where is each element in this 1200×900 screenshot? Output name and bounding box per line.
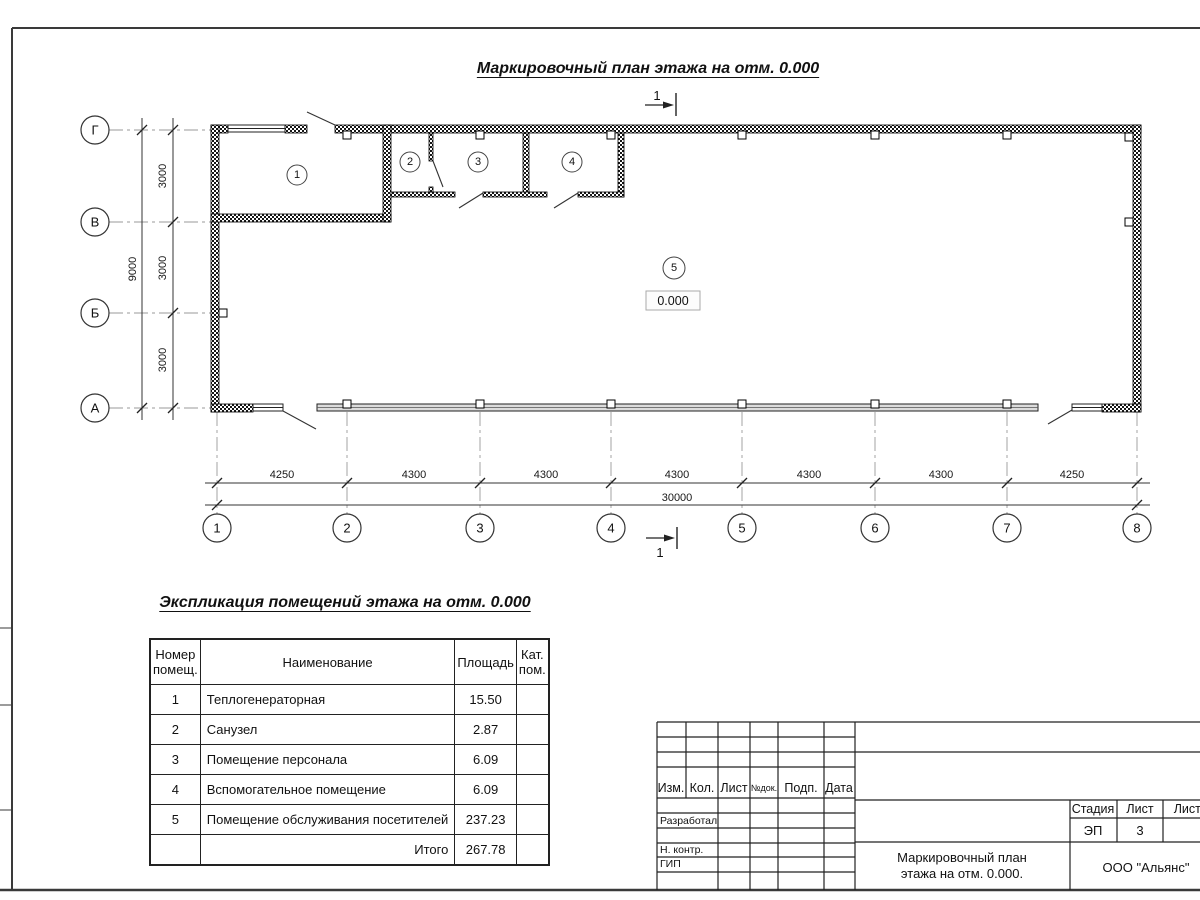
sheet-label: Лист (1126, 802, 1153, 816)
titleblock-row-gip: ГИП (660, 858, 681, 870)
room-area-cell: 237.23 (455, 805, 517, 835)
dim-label: 4250 (270, 469, 294, 481)
room-number: 4 (569, 156, 575, 168)
titleblock-row-developed: Разработал (660, 815, 717, 827)
titleblock-col-data: Дата (825, 781, 853, 795)
wall (1133, 125, 1141, 412)
room-name-cell: Теплогенераторная (200, 685, 455, 715)
doc-title-line2: этажа на отм. 0.000. (901, 866, 1023, 881)
explication-title: Экспликация помещений этажа на отм. 0.00… (150, 594, 540, 612)
door-leaf (1048, 410, 1072, 424)
room-cat-cell (516, 745, 548, 775)
dim-label: 3000 (157, 164, 169, 188)
explication-table: Номер помещ. Наименование Площадь Кат. п… (149, 638, 550, 866)
column-marker (1125, 133, 1133, 141)
door-leaf (459, 193, 483, 208)
stage-value: ЭП (1084, 823, 1103, 838)
axis-label: 6 (871, 521, 878, 536)
dim-label: 4300 (929, 469, 953, 481)
column-marker (476, 400, 484, 408)
axis-markers-left (81, 116, 109, 422)
table-header-row: Номер помещ. Наименование Площадь Кат. п… (150, 639, 549, 685)
axis-label: 8 (1133, 521, 1140, 536)
dim-label: 3000 (157, 256, 169, 280)
door-leaf (307, 112, 335, 125)
section-mark-top: 1 (645, 88, 676, 116)
room-cat-cell (516, 715, 548, 745)
room-name-cell: Помещение персонала (200, 745, 455, 775)
room-number: 3 (475, 156, 481, 168)
wall (211, 404, 253, 412)
wall (391, 192, 455, 197)
dim-label: 4300 (534, 469, 558, 481)
room-number: 5 (671, 262, 677, 274)
room-number-cell: 2 (150, 715, 200, 745)
axis-label: 5 (738, 521, 745, 536)
door-leaf (554, 193, 578, 208)
room-number: 2 (407, 156, 413, 168)
wall (211, 125, 219, 412)
axis-label: Г (91, 123, 98, 138)
column-marker (219, 309, 227, 317)
column-marker (607, 131, 615, 139)
windows (228, 125, 1102, 411)
total-label-cell: Итого (200, 835, 455, 866)
column-marker (738, 131, 746, 139)
explication-title-text: Экспликация помещений этажа на отм. 0.00… (159, 594, 530, 611)
column-marker (871, 400, 879, 408)
room-number-cell: 4 (150, 775, 200, 805)
room-name-cell: Вспомогательное помещение (200, 775, 455, 805)
room-number-cell: 3 (150, 745, 200, 775)
table-row: 3 Помещение персонала 6.09 (150, 745, 549, 775)
stage-label: Стадия (1072, 802, 1115, 816)
room-number-cell: 5 (150, 805, 200, 835)
wall (211, 214, 391, 222)
axis-label: Б (91, 306, 100, 321)
wall (523, 133, 529, 197)
titleblock-col-izm: Изм. (658, 781, 685, 795)
wall (483, 192, 547, 197)
header-name: Наименование (200, 639, 455, 685)
dim-label: 4300 (665, 469, 689, 481)
dim-total-label: 9000 (127, 257, 139, 281)
column-marker (1003, 400, 1011, 408)
room-area-cell: 2.87 (455, 715, 517, 745)
total-cat-cell (516, 835, 548, 866)
plan-title: Маркировочный план этажа на отм. 0.000 (418, 60, 878, 78)
wall (285, 125, 307, 133)
doc-title-line1: Маркировочный план (897, 850, 1027, 865)
column-marker (1125, 218, 1133, 226)
table-row: 5 Помещение обслуживания посетителей 237… (150, 805, 549, 835)
total-area-cell: 267.78 (455, 835, 517, 866)
section-mark-bottom: 1 (646, 527, 677, 560)
room-number-cell: 1 (150, 685, 200, 715)
room-cat-cell (516, 775, 548, 805)
axis-label: 1 (213, 521, 220, 536)
column-marker (607, 400, 615, 408)
column-marker (343, 131, 351, 139)
axis-label: В (91, 215, 100, 230)
titleblock-row-ncontr: Н. контр. (660, 844, 703, 856)
header-category: Кат. пом. (516, 639, 548, 685)
room-area-cell: 6.09 (455, 745, 517, 775)
titleblock-col-list: Лист (720, 781, 747, 795)
table-row: 2 Санузел 2.87 (150, 715, 549, 745)
dim-label: 4300 (797, 469, 821, 481)
sheet-value: 3 (1136, 823, 1143, 838)
total-empty-cell (150, 835, 200, 866)
axis-label: 3 (476, 521, 483, 536)
titleblock-col-podp: Подп. (784, 781, 817, 795)
door-leaf (283, 411, 316, 429)
room-area-cell: 15.50 (455, 685, 517, 715)
dim-label: 3000 (157, 348, 169, 372)
titleblock-col-ndok: №док. (751, 783, 777, 793)
dim-label: 4250 (1060, 469, 1084, 481)
wall (578, 192, 624, 197)
column-marker (343, 400, 351, 408)
drawing-sheet: 4250 4300 4300 4300 4300 4300 4250 30000… (0, 0, 1200, 900)
dim-label: 4300 (402, 469, 426, 481)
table-total-row: Итого 267.78 (150, 835, 549, 866)
room-name-cell: Помещение обслуживания посетителей (200, 805, 455, 835)
wall (383, 125, 391, 222)
dim-total-label: 30000 (662, 492, 693, 504)
column-marker (1003, 131, 1011, 139)
room-name-cell: Санузел (200, 715, 455, 745)
axis-label: А (91, 401, 100, 416)
room-number: 1 (294, 169, 300, 181)
column-marker (871, 131, 879, 139)
header-area: Площадь (455, 639, 517, 685)
elevation-mark: 0.000 (657, 294, 688, 308)
titleblock-col-kol: Кол. (690, 781, 715, 795)
header-room-number: Номер помещ. (150, 639, 200, 685)
company-name: ООО "Альянс" (1103, 860, 1190, 875)
column-marker (738, 400, 746, 408)
axis-label: 7 (1003, 521, 1010, 536)
wall (429, 187, 433, 192)
column-marker (476, 131, 484, 139)
plan-title-text: Маркировочный план этажа на отм. 0.000 (477, 60, 819, 77)
room-area-cell: 6.09 (455, 775, 517, 805)
wall (429, 133, 433, 161)
dimension-ticks (137, 125, 1142, 510)
table-row: 4 Вспомогательное помещение 6.09 (150, 775, 549, 805)
section-mark-label: 1 (656, 545, 663, 560)
table-row: 1 Теплогенераторная 15.50 (150, 685, 549, 715)
axis-label: 2 (343, 521, 350, 536)
axis-label: 4 (607, 521, 614, 536)
sheets-label: Листов (1174, 802, 1200, 816)
wall (1102, 404, 1141, 412)
room-cat-cell (516, 805, 548, 835)
wall (618, 133, 624, 197)
section-mark-label: 1 (653, 88, 660, 103)
room-cat-cell (516, 685, 548, 715)
doors (283, 112, 1072, 429)
door-leaf (433, 161, 443, 187)
